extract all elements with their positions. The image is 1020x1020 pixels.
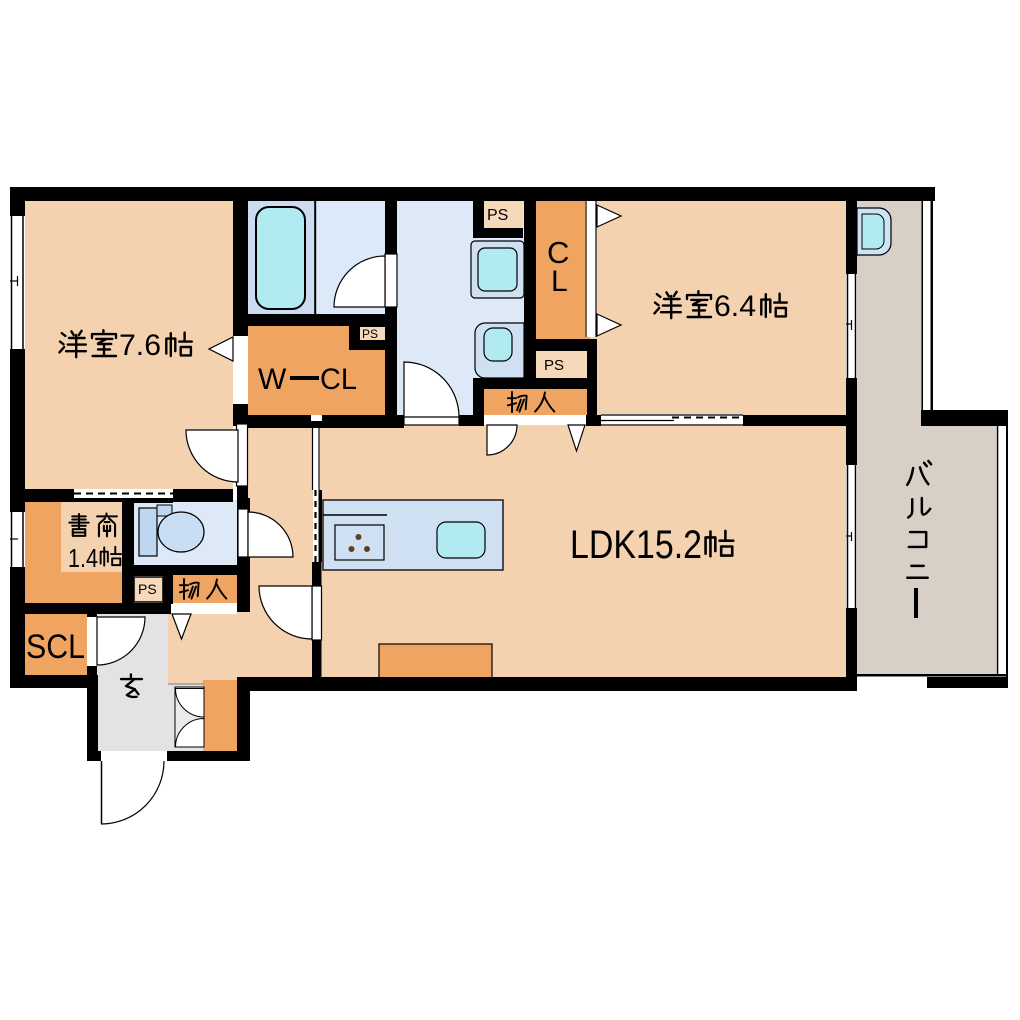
svg-text:LDK15.2: LDK15.2 — [570, 523, 702, 567]
svg-text:1.4: 1.4 — [68, 543, 98, 573]
svg-text:L: L — [551, 265, 568, 298]
svg-text:PS: PS — [544, 357, 564, 374]
svg-text:W: W — [258, 363, 287, 396]
svg-text:SCL: SCL — [26, 628, 85, 666]
svg-text:6.4: 6.4 — [714, 290, 756, 323]
svg-text:PS: PS — [487, 207, 508, 224]
svg-text:PS: PS — [138, 581, 157, 597]
svg-text:7.6: 7.6 — [119, 329, 161, 362]
svg-text:PS: PS — [362, 327, 378, 341]
svg-text:CL: CL — [320, 363, 357, 396]
